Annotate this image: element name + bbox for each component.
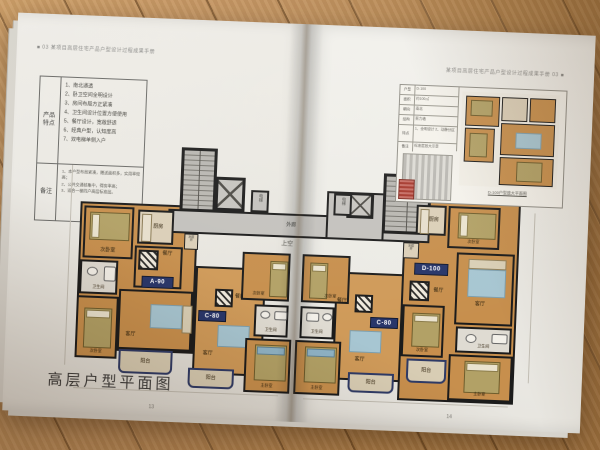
bath-label: 卫生间 [311,330,323,334]
dining-label: 餐厅 [433,287,443,293]
bedroom2-label: 次卧室 [416,348,428,352]
room-bath: 卫生间 [253,304,288,337]
desk-photo: ■ 03 某项目高层住宅产品户型设计过程成果手册 某项目高层住宅产品户型设计过程… [0,0,600,450]
unit-badge-c80: C-80 [370,317,398,329]
elevator-shaft-left-icon [214,177,245,212]
detail-row-label: 备注 [398,142,413,152]
master-label: 主卧室 [310,386,322,390]
utility-shaft-right: 水暖井 [403,242,420,259]
shaft-label: 水暖井 [188,236,194,243]
tub-fixture [306,312,319,322]
bath-label: 卫生间 [92,285,104,289]
tub-fixture [104,266,117,281]
detail-row-value: 1、全明设计 2、动静分区 [413,126,457,144]
duct-shaft-icon [409,280,430,301]
bed-furniture [254,344,287,381]
detail-row-label: 结构 [399,115,414,125]
inset-room [499,157,554,187]
inset-room [529,98,556,123]
detail-row-value: 标准层放大示意 [413,143,456,154]
bedroom2-label: 次卧室 [252,291,264,295]
balcony-label: 阳台 [366,380,376,385]
pillow [414,315,438,323]
bath-label: 卫生间 [265,328,277,332]
detail-row-value: D-100 [415,86,458,97]
rug-furniture [467,269,506,299]
detail-row-label: 面积 [400,95,415,105]
rug-furniture [349,330,382,353]
master-label: 主卧室 [473,392,485,396]
elevator-room-right: 电梯 [333,193,352,216]
detail-row-value: 南北 [414,106,457,117]
inset-room [465,96,500,127]
room-bedroom2: 次卧室 [301,254,351,304]
feature-list: 1、南北通透 2、卧卫空间全明设计 3、房间布局方正紧凑 4、卫生间设计位置方便… [58,77,146,166]
pillow [312,265,326,273]
room-bedroom2: 次卧室 [401,304,445,358]
living-label: 客厅 [354,356,364,362]
pillow [460,214,469,236]
pillow [466,363,498,372]
pillow [257,346,285,355]
detail-row-label: 朝向 [399,105,414,115]
shaft-label: 水暖井 [408,244,414,251]
open-booklet: ■ 03 某项目高层住宅产品户型设计过程成果手册 某项目高层住宅产品户型设计过程… [2,13,596,434]
elevator-label: 电梯 [258,194,264,203]
room-bedroom2: 次卧室 [82,205,134,259]
bed-furniture [516,162,543,183]
bed-furniture [89,212,130,242]
bedroom2-label: 次卧室 [100,248,115,254]
inset-caption: D-100户型放大平面图 [458,188,556,198]
pillow [307,348,335,357]
room-master: 主卧室 [447,354,513,403]
red-stamp [398,179,415,200]
sink-fixture [260,311,270,319]
kitchen-counter [141,214,152,242]
room-living: 客厅 [117,289,193,352]
duct-shaft-icon [138,250,159,271]
master-label: 主卧室 [260,384,272,388]
bed-furniture [411,313,440,348]
bedroom2-label: 次卧室 [324,294,336,298]
rug-furniture [515,133,542,150]
notes-label-text: 备注 [39,188,52,197]
rug-furniture [150,304,183,329]
dining-label: 餐厅 [162,252,172,257]
stairwell-left [179,147,218,212]
sink-fixture [87,267,98,276]
room-bath: 卫生间 [79,259,118,294]
sink-fixture [465,334,476,343]
dining-label: 餐厅 [337,298,347,304]
room-balcony: 阳台 [187,368,234,390]
tub-fixture [274,311,287,321]
detail-row-label: 户型 [400,85,415,95]
room-bedroom2: 次卧室 [447,206,501,250]
unit-badge-c80: C-80 [198,310,226,322]
detail-row-label: 特点 [398,125,414,142]
page-number-right: 14 [446,414,452,420]
sink-fixture [322,313,332,321]
bed-furniture [304,346,337,383]
pillow [272,263,286,271]
inset-room [500,123,555,157]
inset-floorplan [459,91,561,189]
unit-detail-table: 户型 D-100 面积 约100㎡ 朝向 南北 结构 剪力墙 [398,85,460,151]
unit-detail-panel: 户型 D-100 面积 约100㎡ 朝向 南北 结构 剪力墙 [395,84,568,209]
bed-furniture [458,212,497,240]
living-label: 客厅 [475,301,485,307]
elevator-label: 电梯 [341,198,347,207]
void-label: 上空 [281,241,293,249]
room-balcony: 阳台 [406,358,447,384]
room-bedroom2: 次卧室 [241,252,291,302]
bed-furniture [83,307,113,348]
balcony-label: 阳台 [206,376,216,381]
notes-label: 备注 [35,163,58,220]
bed-furniture [463,361,500,394]
room-master: 主卧室 [293,340,341,396]
feature-table-label-text: 产品特点 [42,112,56,129]
inset-room [501,97,528,122]
living-label: 客厅 [125,331,135,337]
inset-room [464,128,495,163]
unit-badge-a90: A-90 [141,276,173,289]
corridor-label: 外廊 [286,223,296,228]
room-balcony: 阳台 [347,372,394,394]
detail-row: 备注 标准层放大示意 [398,142,456,153]
room-bedroom2: 次卧室 [74,295,118,359]
kitchen-label: 厨房 [429,218,439,223]
unit-badge-d100: D-100 [414,263,448,276]
detail-row-value: 约100㎡ [415,96,458,107]
bed-furniture [269,261,288,298]
room-kitchen: 厨房 [137,210,174,245]
feature-item: 7、双电梯单侧入户 [63,135,142,147]
balcony-label: 阳台 [140,359,150,364]
page-number-left: 13 [148,404,154,410]
bath-label: 卫生间 [477,344,489,348]
detail-row-value: 剪力墙 [414,116,457,127]
duct-shaft-icon [215,289,234,308]
bedroom2-label: 次卧室 [90,349,102,353]
room-bath: 卫生间 [299,306,334,339]
room-kitchen: 厨房 [416,205,447,236]
booklet-spread: ■ 03 某项目高层住宅产品户型设计过程成果手册 某项目高层住宅产品户型设计过程… [2,13,596,434]
room-bath: 卫生间 [455,326,512,354]
bedroom2-label: 次卧室 [467,240,479,244]
kitchen-label: 厨房 [153,225,163,230]
pillow [86,310,110,319]
stair-divider [197,151,200,209]
bed-furniture [469,133,488,158]
living-label: 客厅 [203,350,213,356]
utility-shaft-left: 水暖井 [184,233,199,250]
sofa-furniture [181,305,192,333]
bed-furniture [470,100,493,117]
room-master: 主卧室 [243,338,291,394]
room-living: 客厅 [454,252,515,326]
pillow [91,214,100,238]
duct-shaft-icon [354,294,373,313]
balcony-label: 阳台 [421,369,431,374]
elevator-room-left: 电梯 [250,190,269,213]
tub-fixture [491,334,507,345]
